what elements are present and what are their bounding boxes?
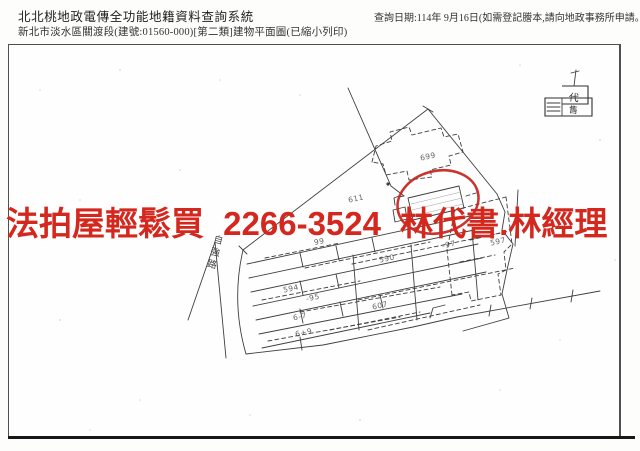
stamp-char-bottom: 售	[568, 103, 578, 117]
red-watermark-text: 法拍屋輕鬆買 2266-3524 林代書.林經理	[6, 197, 607, 245]
paper-speckles	[39, 64, 616, 431]
scanned-floor-plan-page: 北北桃地政電傳全功能地籍資料查詢系統 新北市淡水區關渡段(建號:01560-00…	[0, 0, 640, 451]
